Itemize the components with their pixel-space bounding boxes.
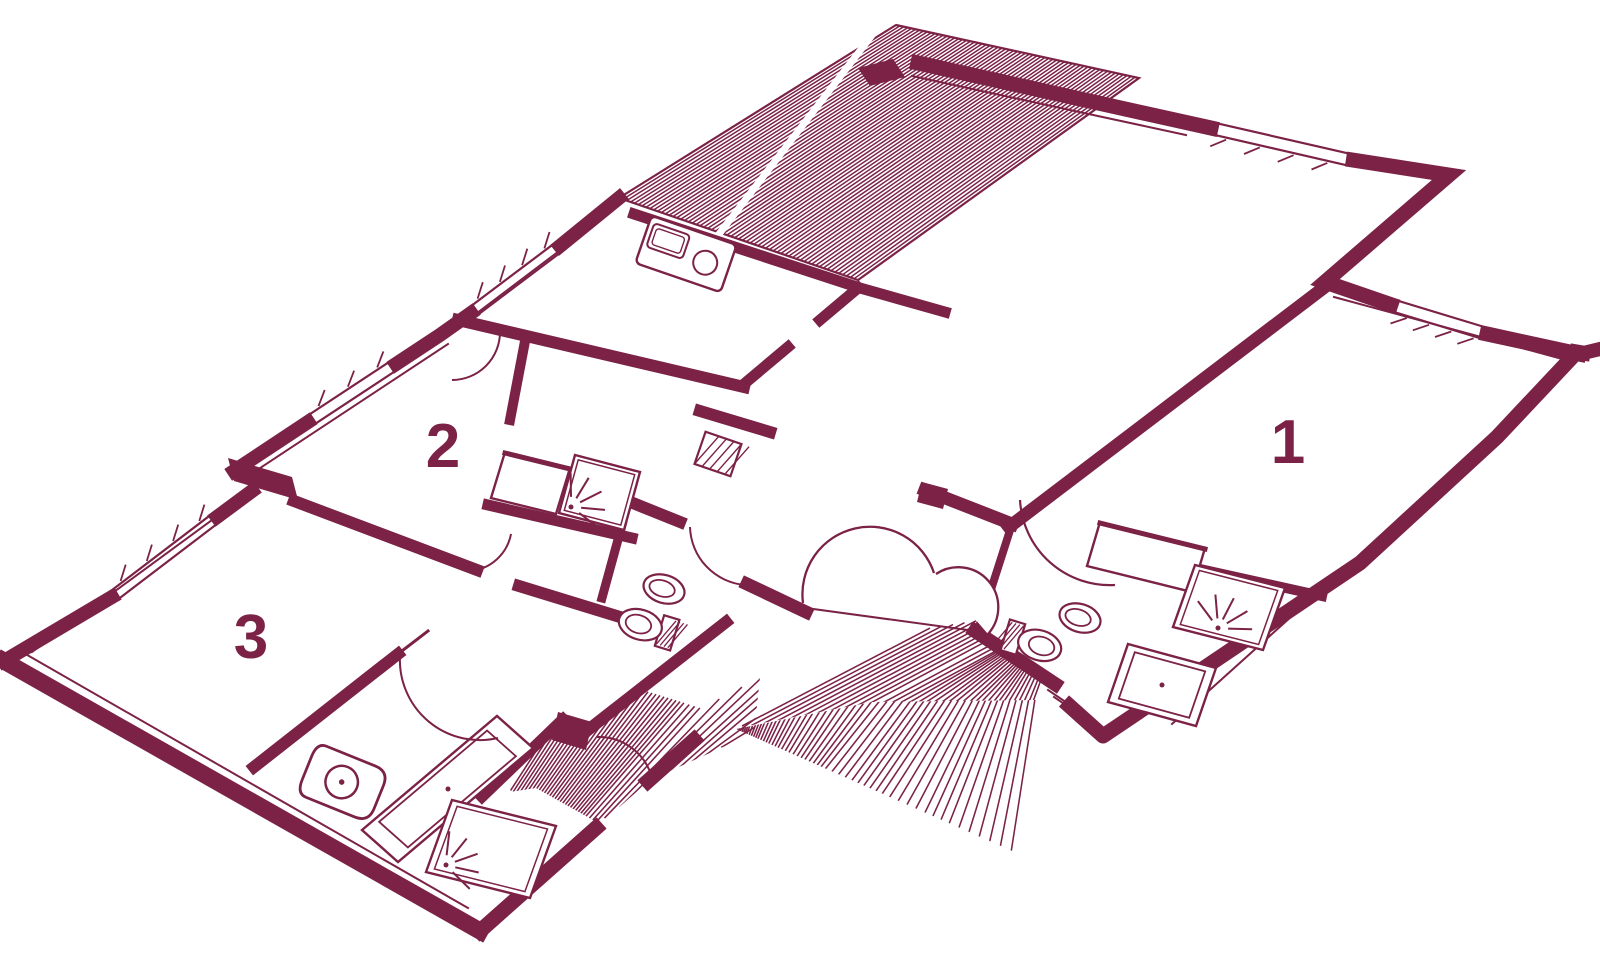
svg-text:3: 3 [234, 603, 268, 672]
svg-text:2: 2 [426, 412, 460, 481]
svg-text:1: 1 [1271, 408, 1305, 477]
